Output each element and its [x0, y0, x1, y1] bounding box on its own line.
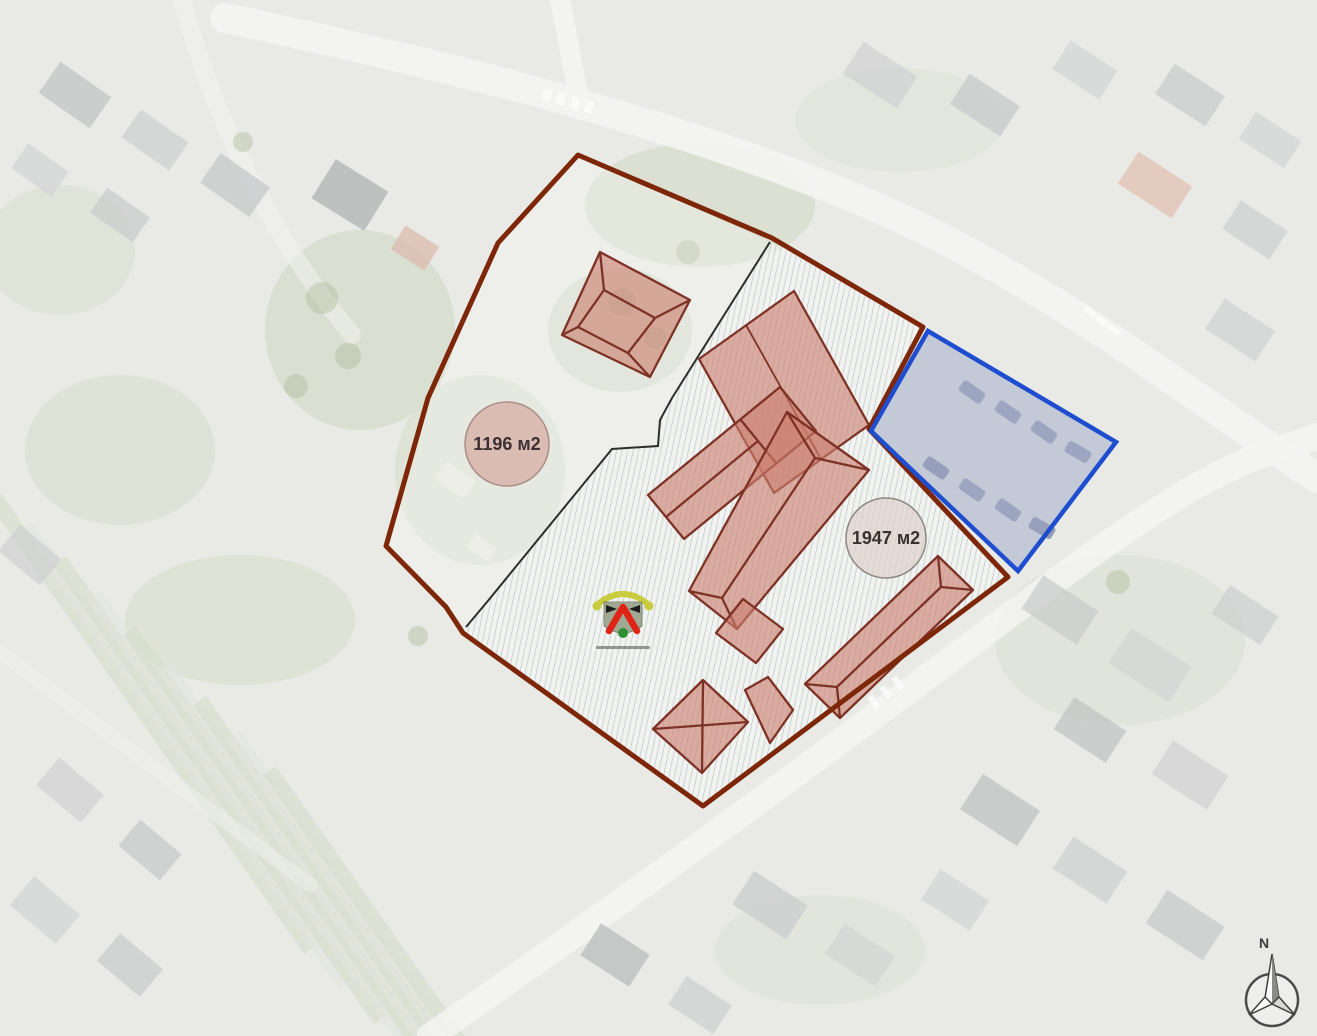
- green-patch: [25, 375, 215, 525]
- tree: [1106, 570, 1130, 594]
- wreath-end: [645, 602, 654, 611]
- tree: [284, 374, 308, 398]
- area-label-west: 1196 м2: [473, 434, 540, 454]
- wreath-end: [593, 602, 602, 611]
- green-base: [618, 628, 628, 638]
- area-badge-west: 1196 м2: [465, 402, 549, 486]
- area-badge-east: 1947 м2: [846, 498, 926, 578]
- emblem-caption-smudge: [596, 646, 650, 649]
- tree: [306, 282, 338, 314]
- site-plan-screenshot: 1196 м2 1947 м2 N: [0, 0, 1317, 1036]
- north-label: N: [1259, 935, 1269, 951]
- area-label-east: 1947 м2: [852, 528, 920, 548]
- tree: [408, 626, 428, 646]
- tree: [335, 343, 361, 369]
- tree: [233, 132, 253, 152]
- site-plan-map: 1196 м2 1947 м2 N: [0, 0, 1317, 1036]
